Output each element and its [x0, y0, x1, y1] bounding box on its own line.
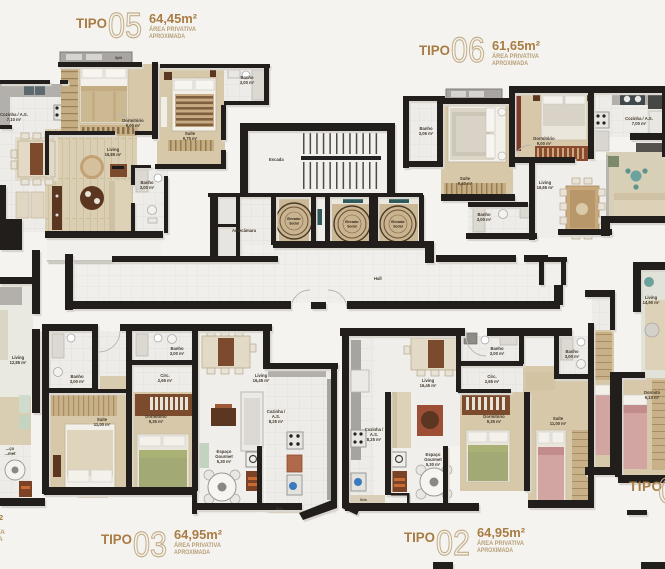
- svg-text:3,00 m²: 3,00 m²: [477, 217, 492, 222]
- svg-text:16,45 m²: 16,45 m²: [253, 378, 270, 383]
- svg-text:9,10 m²: 9,10 m²: [645, 395, 660, 400]
- svg-text:64,45m²: 64,45m²: [149, 12, 197, 26]
- svg-text:11,00 m²: 11,00 m²: [550, 421, 567, 426]
- svg-text:Elevador: Elevador: [391, 220, 405, 224]
- svg-text:16,65 m²: 16,65 m²: [537, 185, 554, 190]
- svg-text:64,95m²: 64,95m²: [174, 528, 222, 542]
- svg-text:16,45 m²: 16,45 m²: [420, 383, 437, 388]
- svg-text:Elevador: Elevador: [345, 220, 359, 224]
- svg-text:12,85 m²: 12,85 m²: [10, 360, 27, 365]
- svg-text:9,35 m²: 9,35 m²: [487, 419, 502, 424]
- svg-text:05: 05: [108, 7, 142, 46]
- svg-text:Hall: Hall: [374, 276, 382, 281]
- svg-text:9,35 m²: 9,35 m²: [149, 419, 164, 424]
- svg-text:TIPO: TIPO: [76, 16, 107, 31]
- svg-text:8,25 m²: 8,25 m²: [367, 437, 382, 442]
- svg-text:9,40 m²: 9,40 m²: [458, 181, 473, 186]
- svg-text:ÁREA PRIVATIVA: ÁREA PRIVATIVA: [149, 24, 196, 33]
- svg-text:2: 2: [0, 513, 3, 522]
- svg-text:APROXIMADA: APROXIMADA: [149, 33, 185, 40]
- svg-text:Selo: Selo: [360, 498, 367, 502]
- svg-text:7,00 m²: 7,00 m²: [632, 121, 647, 126]
- svg-text:Elevador: Elevador: [287, 217, 301, 221]
- svg-text:ÁREA PRIVATIVA: ÁREA PRIVATIVA: [492, 51, 539, 60]
- svg-text:Social: Social: [393, 225, 403, 229]
- svg-text:TIVA: TIVA: [0, 529, 5, 536]
- svg-text:9,75 m²: 9,75 m²: [183, 136, 198, 141]
- svg-text:3,06 m²: 3,06 m²: [419, 131, 434, 136]
- svg-text:3,00 m²: 3,00 m²: [70, 379, 85, 384]
- svg-text:3,00 m²: 3,00 m²: [170, 351, 185, 356]
- svg-text:9,00 m²: 9,00 m²: [537, 141, 552, 146]
- svg-text:TIPO: TIPO: [101, 532, 132, 547]
- svg-text:Antecâmara: Antecâmara: [232, 228, 257, 233]
- svg-text:APROXIMADA: APROXIMADA: [492, 60, 528, 67]
- svg-text:3,00 m²: 3,00 m²: [240, 80, 255, 85]
- svg-text:16,85 m²: 16,85 m²: [105, 152, 122, 157]
- svg-text:ADA: ADA: [0, 536, 3, 543]
- svg-text:2,65 m²: 2,65 m²: [158, 378, 173, 383]
- svg-text:APROXIMADA: APROXIMADA: [477, 547, 513, 554]
- svg-text:TIPO: TIPO: [404, 530, 435, 545]
- svg-text:8,25 m²: 8,25 m²: [269, 419, 284, 424]
- svg-text:Social: Social: [347, 225, 357, 229]
- svg-text:APROXIMADA: APROXIMADA: [174, 549, 210, 556]
- svg-text:Social: Social: [289, 222, 299, 226]
- svg-text:0: 0: [658, 470, 665, 511]
- svg-text:11,00 m²: 11,00 m²: [94, 422, 111, 427]
- svg-text:3,00 m²: 3,00 m²: [565, 354, 580, 359]
- svg-text:3,00 m²: 3,00 m²: [140, 185, 155, 190]
- svg-text:ÁREA PRIVATIVA: ÁREA PRIVATIVA: [174, 540, 221, 549]
- svg-text:...met: ...met: [5, 451, 17, 456]
- svg-text:Escada: Escada: [269, 157, 284, 162]
- svg-text:02: 02: [436, 524, 470, 563]
- svg-text:03: 03: [133, 526, 167, 565]
- svg-text:9,00 m²: 9,00 m²: [126, 123, 141, 128]
- svg-text:5,30 m²: 5,30 m²: [426, 462, 441, 467]
- svg-text:7,10 m²: 7,10 m²: [7, 117, 22, 122]
- svg-text:61,65m²: 61,65m²: [492, 39, 540, 53]
- svg-text:3,00 m²: 3,00 m²: [490, 351, 505, 356]
- svg-text:06: 06: [451, 31, 485, 70]
- svg-text:Selo: Selo: [276, 507, 283, 511]
- svg-text:64,95m²: 64,95m²: [477, 526, 525, 540]
- svg-text:5,30 m²: 5,30 m²: [217, 459, 232, 464]
- svg-text:Split: Split: [115, 56, 123, 60]
- svg-text:TIPO: TIPO: [419, 43, 450, 58]
- svg-text:14,90 m²: 14,90 m²: [643, 300, 660, 305]
- svg-text:2,65 m²: 2,65 m²: [485, 379, 500, 384]
- svg-text:ÁREA PRIVATIVA: ÁREA PRIVATIVA: [477, 538, 524, 547]
